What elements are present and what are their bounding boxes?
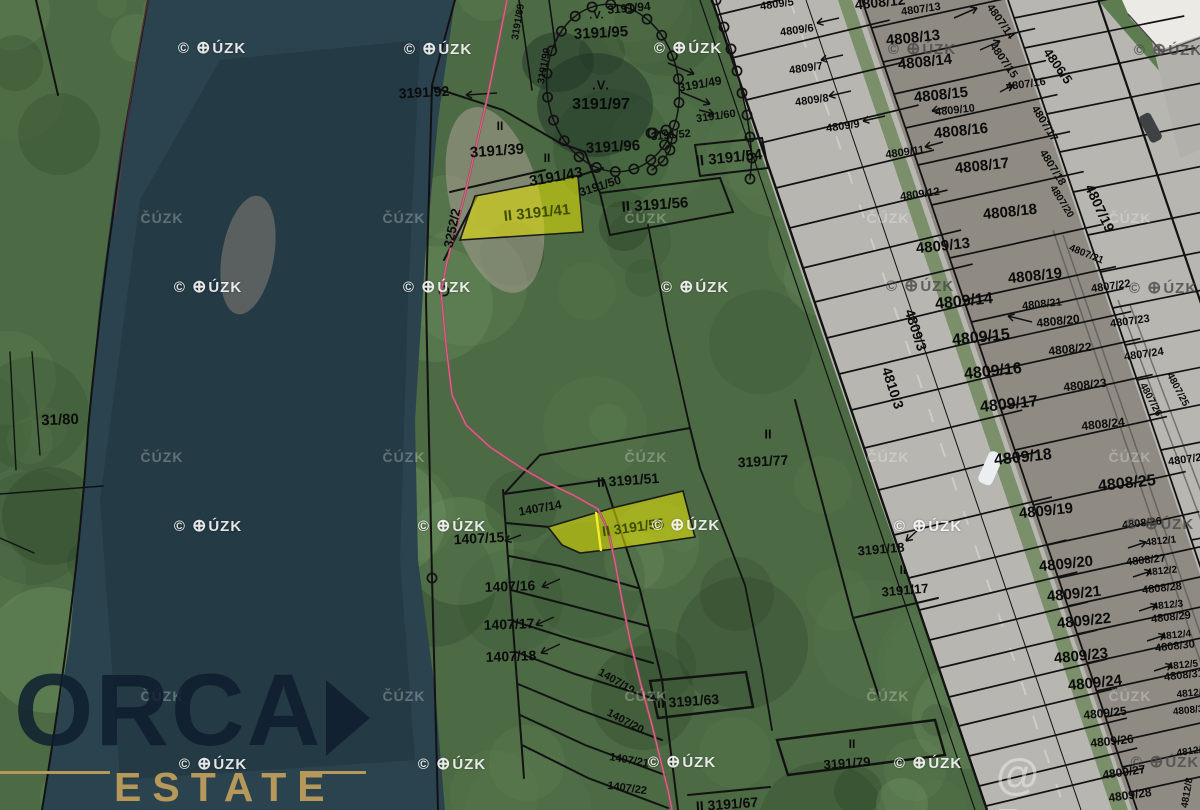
cuzk-watermark-faint: ČÚZK	[1109, 210, 1152, 226]
parcel-label: 4808/16	[933, 121, 989, 142]
parcel-label: 4808/23	[1063, 377, 1107, 393]
parcel-label: 4809/18	[993, 447, 1052, 469]
parcel-label: 4807/20	[1047, 184, 1075, 220]
cuzk-watermark-faint: ČÚZK	[383, 688, 426, 704]
globe-icon: ⊕	[1152, 40, 1167, 60]
parcel-label: 4808/29	[1151, 610, 1192, 625]
parcel-label: 4806/5	[1041, 46, 1074, 86]
parcel-label: 4808/19	[1007, 266, 1063, 287]
parcel-label: 4808/24	[1081, 416, 1125, 432]
cadastral-map-screenshot: 3191/92II3191/393252/2II3191/43II 3191/4…	[0, 0, 1200, 810]
parcel-label: .V.	[589, 11, 604, 22]
parcel-label: 31/80	[41, 412, 79, 428]
globe-icon: ⊕	[670, 515, 685, 535]
parcel-label: 4809/13	[915, 236, 971, 257]
cuzk-watermark: © ⊕ÚZK	[648, 752, 716, 772]
parcel-label: .V.	[592, 79, 610, 92]
globe-icon: ⊕	[906, 39, 921, 59]
parcel-label: 4809/22	[1056, 611, 1112, 632]
parcel-label: 4808/25	[1097, 473, 1156, 495]
cuzk-watermark-faint: ČÚZK	[141, 210, 184, 226]
parcel-label: 4809/7	[789, 61, 824, 77]
parcel-label: 1407/22	[607, 781, 648, 797]
parcel-label: 3191/90	[537, 47, 553, 84]
parcel-label: 1407/16	[484, 578, 535, 594]
globe-icon: ⊕	[421, 277, 436, 297]
parcel-label: 4810/3	[880, 365, 907, 410]
parcel-label: 4809/6	[780, 23, 815, 39]
parcel-label: 3191/50	[578, 174, 623, 199]
parcel-label: 4809/9	[826, 119, 861, 135]
parcel-label: 4808/21	[1022, 297, 1063, 312]
parcel-label: 4808/22	[1048, 341, 1092, 357]
globe-icon: ⊕	[912, 753, 927, 773]
parcel-label: 4808/30	[1155, 639, 1196, 654]
globe-icon: ⊕	[192, 277, 207, 297]
cuzk-watermark: © ⊕ÚZK	[418, 754, 486, 774]
parcel-label: 4809/10	[935, 103, 976, 118]
parcel-label: 4808/31	[1164, 668, 1200, 683]
cuzk-watermark-faint: ČÚZK	[625, 210, 668, 226]
parcel-label: 4808/28	[1142, 581, 1183, 596]
parcel-label: 4812/2	[1146, 565, 1177, 578]
parcel-label: 4807/26	[1137, 382, 1163, 419]
globe-icon: ⊕	[192, 516, 207, 536]
gold-divider-left	[0, 771, 110, 774]
cuzk-watermark: © ⊕ÚZK	[403, 277, 471, 297]
cuzk-watermark: © ⊕ÚZK	[418, 516, 486, 536]
parcel-label: 4809/17	[979, 394, 1038, 416]
parcel-label: 3252/2	[442, 207, 463, 249]
cuzk-watermark-faint: ČÚZK	[383, 210, 426, 226]
parcel-label: 4809/21	[1046, 584, 1102, 605]
parcel-label: 3191/89	[511, 3, 527, 40]
cuzk-watermark: © ⊕ÚZK	[404, 39, 472, 59]
globe-icon: ⊕	[422, 39, 437, 59]
globe-icon: ⊕	[196, 38, 211, 58]
parcel-label: 4812/1	[1145, 535, 1176, 548]
parcel-label: 3191/52	[651, 129, 692, 143]
parcel-label: 4807/15	[987, 42, 1019, 81]
cuzk-watermark-faint: ČÚZK	[1109, 688, 1152, 704]
globe-icon: ⊕	[672, 38, 687, 58]
cuzk-watermark-faint: ČÚZK	[1109, 449, 1152, 465]
orca-fin-icon	[326, 680, 370, 756]
parcel-label: 4809/12	[900, 187, 941, 203]
parcel-label: 4807/25	[1164, 372, 1190, 409]
parcel-label: 3191/17	[881, 581, 929, 598]
parcel-label: II 3191/51	[596, 471, 659, 489]
parcel-label: 4809/19	[1018, 501, 1074, 522]
parcel-label: II	[544, 152, 551, 164]
cuzk-watermark: © ⊕ÚZK	[894, 753, 962, 773]
cuzk-watermark: © ⊕ÚZK	[1129, 278, 1197, 298]
parcel-label: 4808/12	[854, 0, 906, 12]
parcel-label: II	[900, 564, 907, 576]
cuzk-watermark: © ⊕ÚZK	[886, 276, 954, 296]
parcel-label: 4807/16	[1006, 77, 1047, 93]
cuzk-watermark: © ⊕ÚZK	[178, 38, 246, 58]
parcel-label: 4808/17	[954, 156, 1010, 177]
globe-icon: ⊕	[1144, 514, 1159, 534]
parcel-label: 4807/13	[901, 2, 942, 18]
parcel-label: 4809/16	[963, 361, 1022, 383]
bazos-watermark: @ Bazos.cz	[996, 750, 1200, 810]
cuzk-watermark-faint: ČÚZK	[867, 449, 910, 465]
cuzk-watermark-faint: ČÚZK	[141, 449, 184, 465]
cuzk-watermark-faint: ČÚZK	[867, 210, 910, 226]
parcel-label: 4807/22	[1091, 279, 1132, 295]
parcel-label: II	[497, 120, 504, 132]
parcel-label: 3191/43	[528, 165, 584, 189]
parcel-label: 1407/17	[483, 616, 534, 632]
globe-icon: ⊕	[436, 516, 451, 536]
parcel-label: 3191/95	[574, 24, 629, 42]
globe-icon: ⊕	[1147, 278, 1162, 298]
gold-divider-right	[300, 771, 366, 774]
parcel-label: 3191/92	[398, 84, 449, 101]
parcel-label: 4809/11	[885, 145, 925, 161]
cuzk-watermark: © ⊕ÚZK	[174, 516, 242, 536]
parcel-label: 4809/8	[795, 93, 830, 109]
cuzk-watermark-faint: ČÚZK	[383, 449, 426, 465]
parcel-label: 4807/24	[1124, 347, 1165, 363]
parcel-label: 4809/26	[1090, 733, 1134, 749]
parcel-label: 4808/18	[982, 202, 1038, 223]
parcel-label: 1407/20	[605, 708, 645, 736]
globe-icon: ⊕	[666, 752, 681, 772]
parcel-label: 4807/21	[1067, 244, 1104, 267]
globe-icon: ⊕	[904, 276, 919, 296]
parcel-label: 3191/79	[823, 755, 871, 771]
cuzk-watermark: © ⊕ÚZK	[894, 516, 962, 536]
cuzk-watermark: © ⊕ÚZK	[1134, 40, 1200, 60]
parcel-label: 4807/23	[1110, 314, 1151, 330]
parcel-label: 3191/97	[572, 97, 630, 113]
parcel-label: 1407/21	[608, 752, 649, 770]
parcel-label: 3191/77	[737, 453, 788, 470]
globe-icon: ⊕	[436, 754, 451, 774]
parcel-label: II 3191/67	[695, 795, 758, 810]
parcel-label: 3191/94	[607, 0, 651, 16]
parcel-label: II 3191/41	[503, 202, 571, 224]
parcel-label: 4807/19	[1083, 182, 1117, 234]
parcel-label: 4808/15	[913, 85, 969, 106]
parcel-label: 3191/96	[586, 138, 641, 156]
parcel-label: 3191/49	[678, 74, 723, 93]
parcel-label: 4809/5	[760, 0, 795, 13]
parcel-label: 1407/14	[518, 498, 563, 517]
parcel-label: 4809/20	[1038, 554, 1094, 575]
parcel-label: 4809/25	[1083, 705, 1127, 721]
parcel-label: 3191/18	[857, 540, 905, 557]
cuzk-watermark: © ⊕ÚZK	[652, 515, 720, 535]
parcel-label: 3191/60	[696, 109, 737, 125]
parcel-label: 4808/32	[1172, 704, 1200, 718]
parcel-label: 4809/23	[1053, 646, 1109, 667]
cuzk-watermark-faint: ČÚZK	[625, 449, 668, 465]
cuzk-watermark: © ⊕ÚZK	[888, 39, 956, 59]
parcel-label: 3191/39	[469, 142, 524, 161]
cuzk-watermark-faint: ČÚZK	[867, 688, 910, 704]
parcel-label: 4807/18	[1037, 148, 1067, 188]
parcel-label: 4808/20	[1036, 313, 1080, 329]
cuzk-watermark: © ⊕ÚZK	[1126, 514, 1194, 534]
parcel-label: 4809/15	[951, 327, 1010, 349]
parcel-label: 4807/27	[1168, 452, 1200, 468]
cuzk-watermark: © ⊕ÚZK	[174, 277, 242, 297]
cuzk-watermark: © ⊕ÚZK	[654, 38, 722, 58]
parcel-label: 4807/17	[1029, 104, 1059, 144]
cuzk-watermark: © ⊕ÚZK	[661, 277, 729, 297]
parcel-label: 4812/6	[1176, 687, 1200, 700]
parcel-label: 1407/18	[485, 648, 536, 664]
parcel-label: 4807/14	[984, 3, 1016, 42]
orca-logo-text: ORCA	[14, 652, 322, 769]
globe-icon: ⊕	[679, 277, 694, 297]
parcel-label: II 3191/54	[695, 147, 763, 169]
parcel-label: 4809/3	[903, 307, 930, 352]
globe-icon: ⊕	[912, 516, 927, 536]
parcel-label: II	[849, 738, 856, 750]
parcel-label: II	[764, 428, 771, 441]
cuzk-watermark-faint: ČÚZK	[625, 688, 668, 704]
